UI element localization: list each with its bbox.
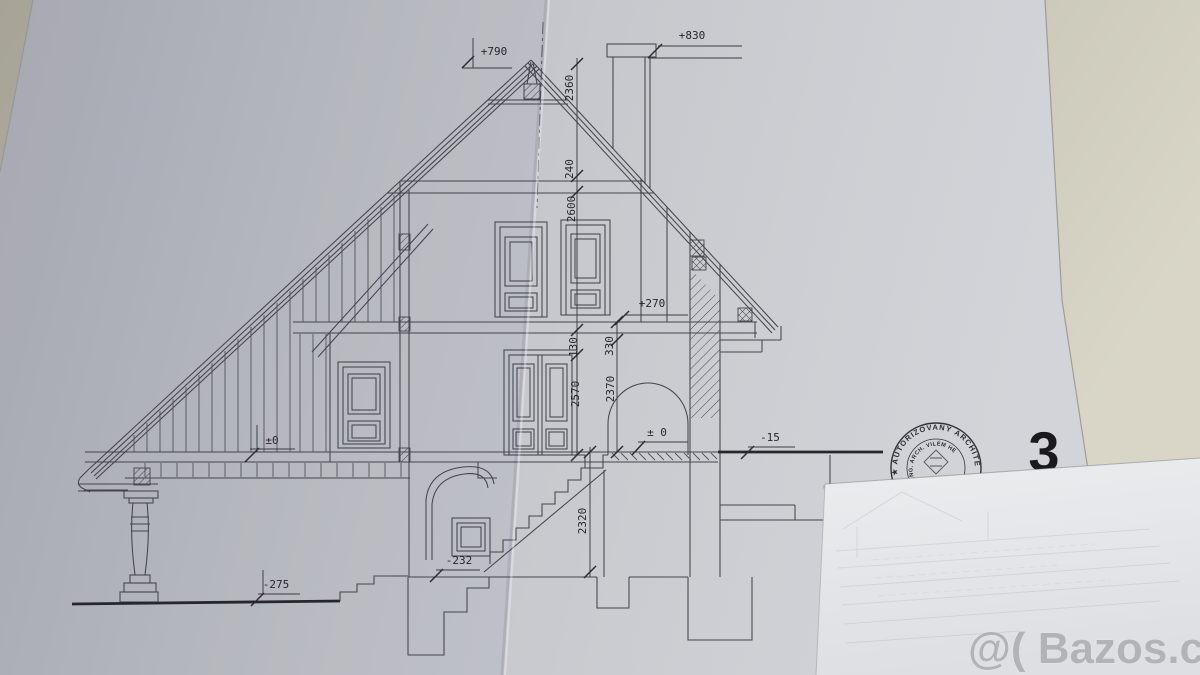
dim-label-ridge-to-collar: 2360 <box>563 75 576 102</box>
dim-label-ground-clear-height: 2370 <box>604 376 617 403</box>
dim-label-collar-beam: 240 <box>563 159 576 179</box>
dim-label-floor-package: 330 <box>603 336 616 356</box>
dim-label-sill: 130 <box>567 337 580 357</box>
watermark: @( Bazos.cz <box>968 624 1200 673</box>
photo-of-blueprint: +790 +830 +270 ±0 ± 0 -15 -232 -275 2360… <box>0 0 1200 675</box>
level-label-terrain-right: -15 <box>760 431 780 444</box>
paper-crease <box>0 0 549 675</box>
level-label-ground-floor-arch: ± 0 <box>647 426 667 439</box>
level-label-attic-floor: +270 <box>639 297 666 310</box>
level-label-chimney: +830 <box>679 29 706 42</box>
dim-label-basement-height: 2320 <box>576 508 589 535</box>
dim-label-attic-height: 2600 <box>565 196 578 223</box>
dim-label-ground-room-height: 2570 <box>569 381 582 408</box>
